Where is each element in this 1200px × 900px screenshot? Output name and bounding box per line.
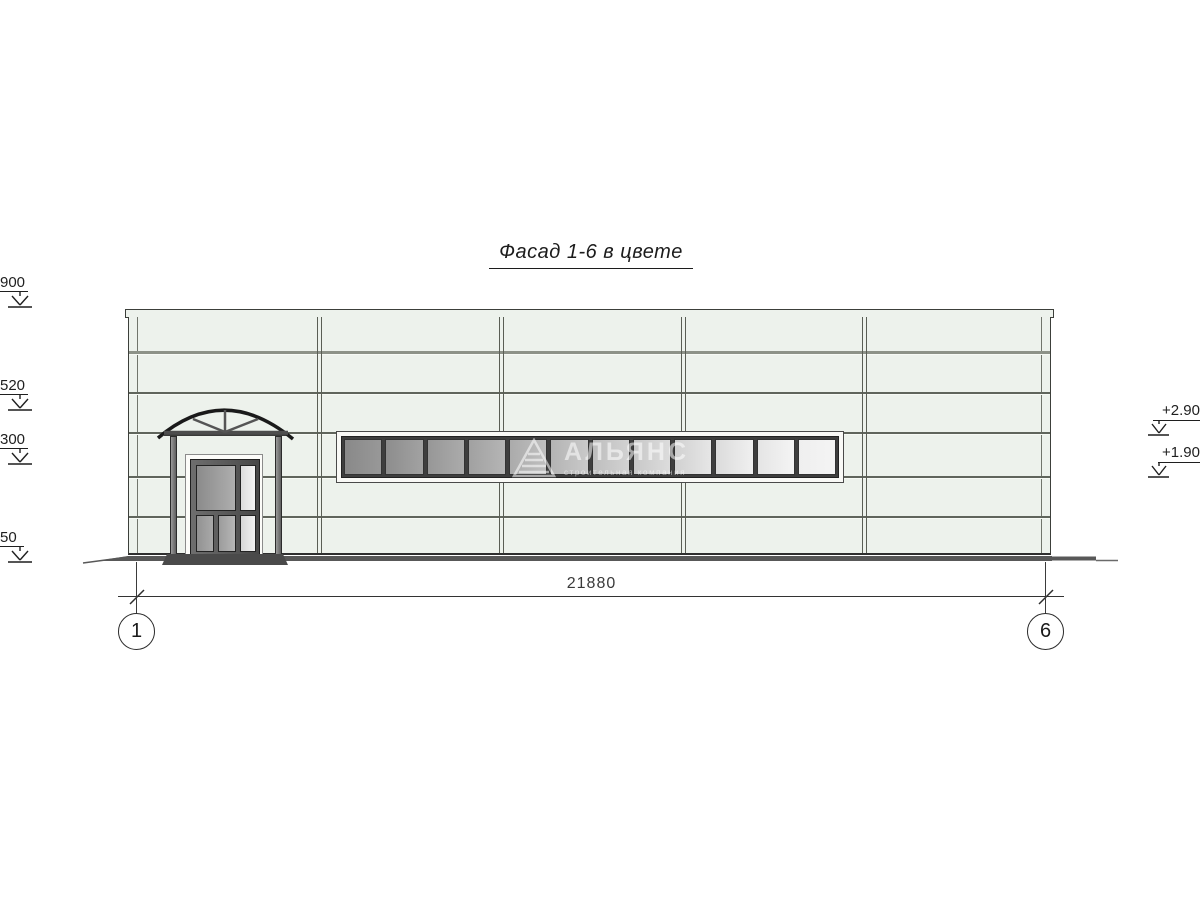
elevation-arrow-icon (4, 547, 36, 565)
panel-seam-axis-2 (317, 317, 322, 553)
watermark-subtitle: строительная компания (564, 468, 689, 477)
elevation-label-left-1: 900 (0, 274, 25, 291)
dimension-line (118, 596, 1064, 597)
axis-label-6: 6 (1040, 620, 1051, 642)
watermark: АЛЬЯНС строительная компания (512, 436, 689, 480)
elevation-arrow-icon (1146, 420, 1172, 438)
door-glass-pane (196, 465, 236, 511)
watermark-text: АЛЬЯНС строительная компания (564, 440, 689, 477)
panel-joint-line (129, 351, 1050, 354)
watermark-name: АЛЬЯНС (564, 440, 689, 465)
drawing-title-wrap: Фасад 1-6 в цвете (0, 241, 1182, 269)
window-pane (757, 439, 795, 475)
window-pane (798, 439, 836, 475)
door-glass-pane (240, 515, 256, 552)
axis-bubble-1: 1 (118, 613, 155, 650)
canopy-post-right (275, 436, 282, 557)
axis-bubble-6: 6 (1027, 613, 1064, 650)
elevation-drawing-canvas: Фасад 1-6 в цвете АЛЬЯНС строительная ко… (0, 0, 1200, 900)
window-pane (385, 439, 423, 475)
elevation-label-left-4: 50 (0, 529, 17, 546)
elevation-arrow-icon (4, 395, 36, 413)
window-pane (715, 439, 753, 475)
watermark-logo-icon (512, 438, 556, 478)
elevation-label-right-1: +2.90 (1162, 402, 1200, 419)
window-pane (468, 439, 506, 475)
panel-joint-line (129, 392, 1050, 394)
window-pane (344, 439, 382, 475)
door-glass-pane (196, 515, 214, 552)
axis-label-1: 1 (131, 620, 142, 642)
drawing-title: Фасад 1-6 в цвете (489, 241, 693, 269)
elevation-arrow-icon (4, 292, 36, 310)
dimension-value: 21880 (0, 575, 1183, 593)
elevation-arrow-icon (1146, 462, 1172, 480)
elevation-arrow-icon (4, 449, 36, 467)
panel-joint-line (129, 516, 1050, 518)
elevation-label-left-3: 300 (0, 431, 25, 448)
door-glass-pane (218, 515, 236, 552)
door-glass-pane (240, 465, 256, 511)
entrance-porch-slab (162, 554, 288, 565)
entrance-canopy-arch (148, 398, 300, 444)
entrance-door (190, 459, 260, 556)
canopy-post-left (170, 436, 177, 557)
elevation-label-left-2: 520 (0, 377, 25, 394)
window-pane (427, 439, 465, 475)
panel-seam-axis-5 (862, 317, 867, 553)
elevation-label-right-2: +1.90 (1162, 444, 1200, 461)
